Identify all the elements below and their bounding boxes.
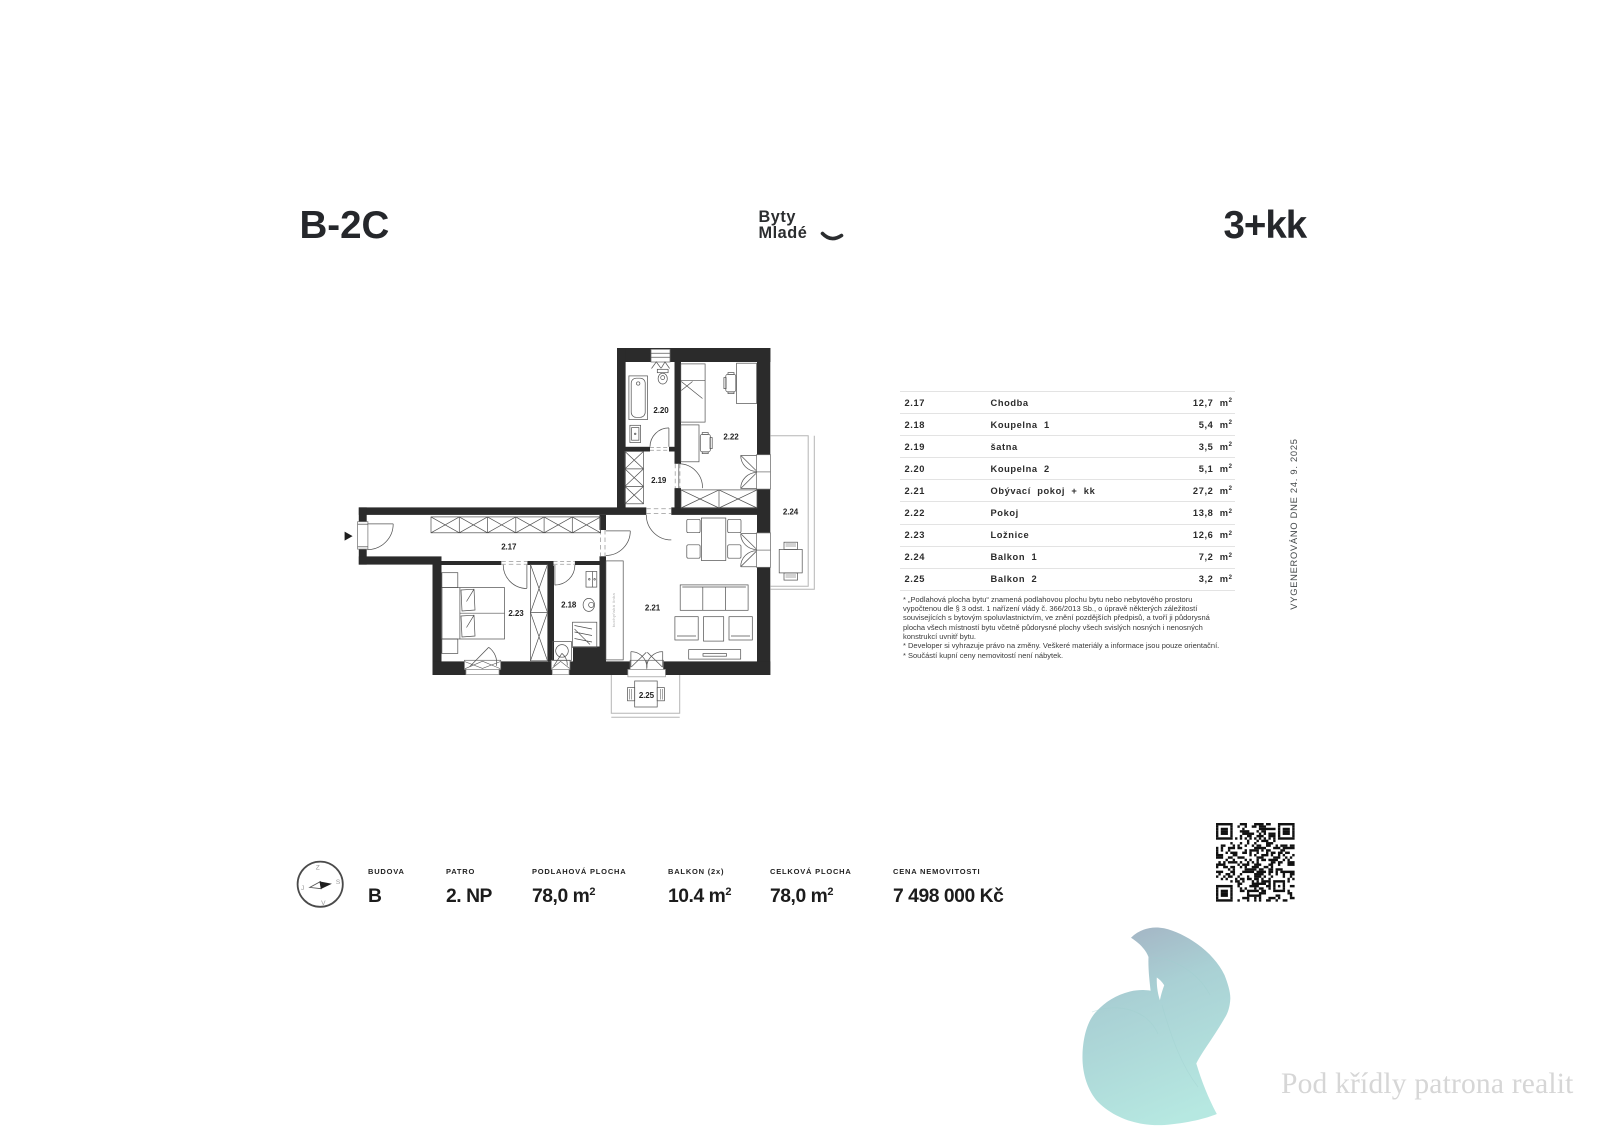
- svg-text:2.25: 2.25: [639, 691, 655, 700]
- svg-text:2.23: 2.23: [508, 609, 524, 618]
- svg-text:2.21: 2.21: [645, 603, 661, 612]
- svg-text:Z: Z: [316, 864, 320, 871]
- svg-text:V: V: [321, 900, 326, 907]
- svg-text:J: J: [301, 885, 304, 892]
- svg-text:2.20: 2.20: [653, 406, 669, 415]
- svg-text:2.19: 2.19: [651, 476, 667, 485]
- svg-text:2.24: 2.24: [783, 507, 799, 516]
- svg-text:2.17: 2.17: [501, 542, 517, 551]
- svg-text:kuchyňská linka: kuchyňská linka: [611, 593, 616, 628]
- svg-text:S: S: [336, 879, 341, 886]
- svg-text:2.18: 2.18: [561, 600, 577, 609]
- svg-text:2.22: 2.22: [723, 432, 739, 441]
